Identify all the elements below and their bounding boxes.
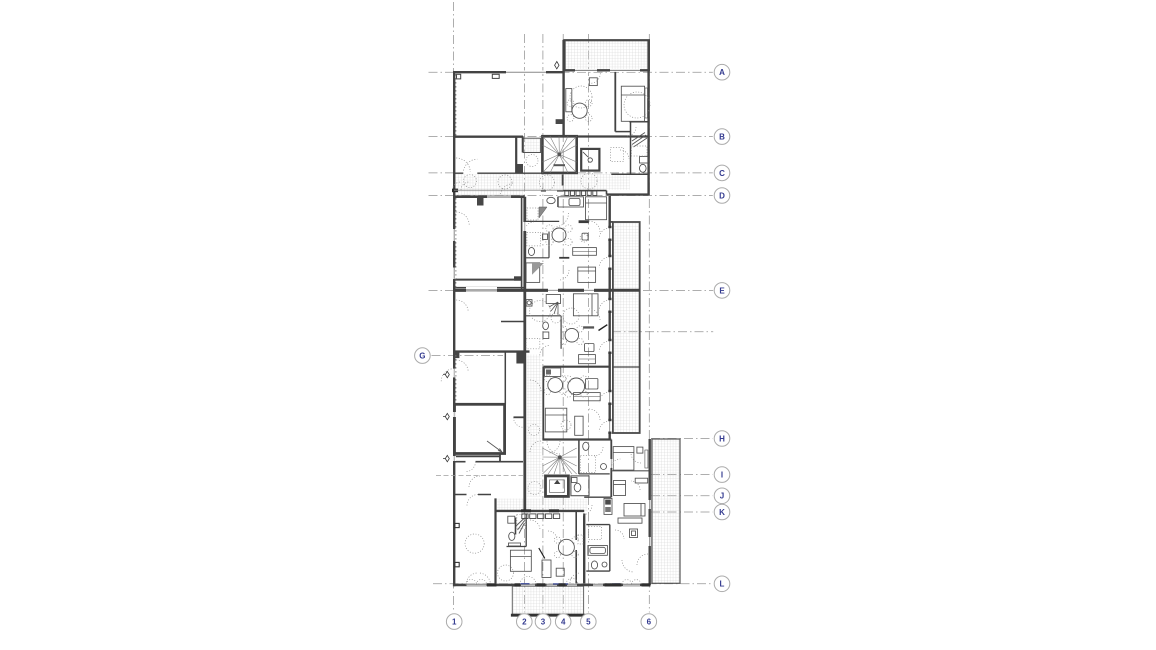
svg-text:B: B: [719, 133, 725, 142]
svg-text:6: 6: [647, 618, 652, 627]
svg-text:I: I: [721, 471, 723, 480]
svg-text:5: 5: [586, 618, 591, 627]
svg-text:1: 1: [452, 618, 457, 627]
svg-text:K: K: [719, 508, 725, 517]
svg-text:A: A: [719, 68, 725, 77]
svg-text:4: 4: [561, 618, 566, 627]
svg-text:D: D: [719, 191, 725, 200]
svg-text:G: G: [419, 352, 425, 361]
svg-text:3: 3: [541, 618, 546, 627]
svg-text:H: H: [719, 434, 725, 443]
svg-text:L: L: [720, 580, 725, 589]
svg-text:J: J: [720, 492, 724, 501]
svg-text:C: C: [719, 169, 725, 178]
svg-text:2: 2: [522, 618, 527, 627]
svg-text:E: E: [719, 286, 725, 295]
